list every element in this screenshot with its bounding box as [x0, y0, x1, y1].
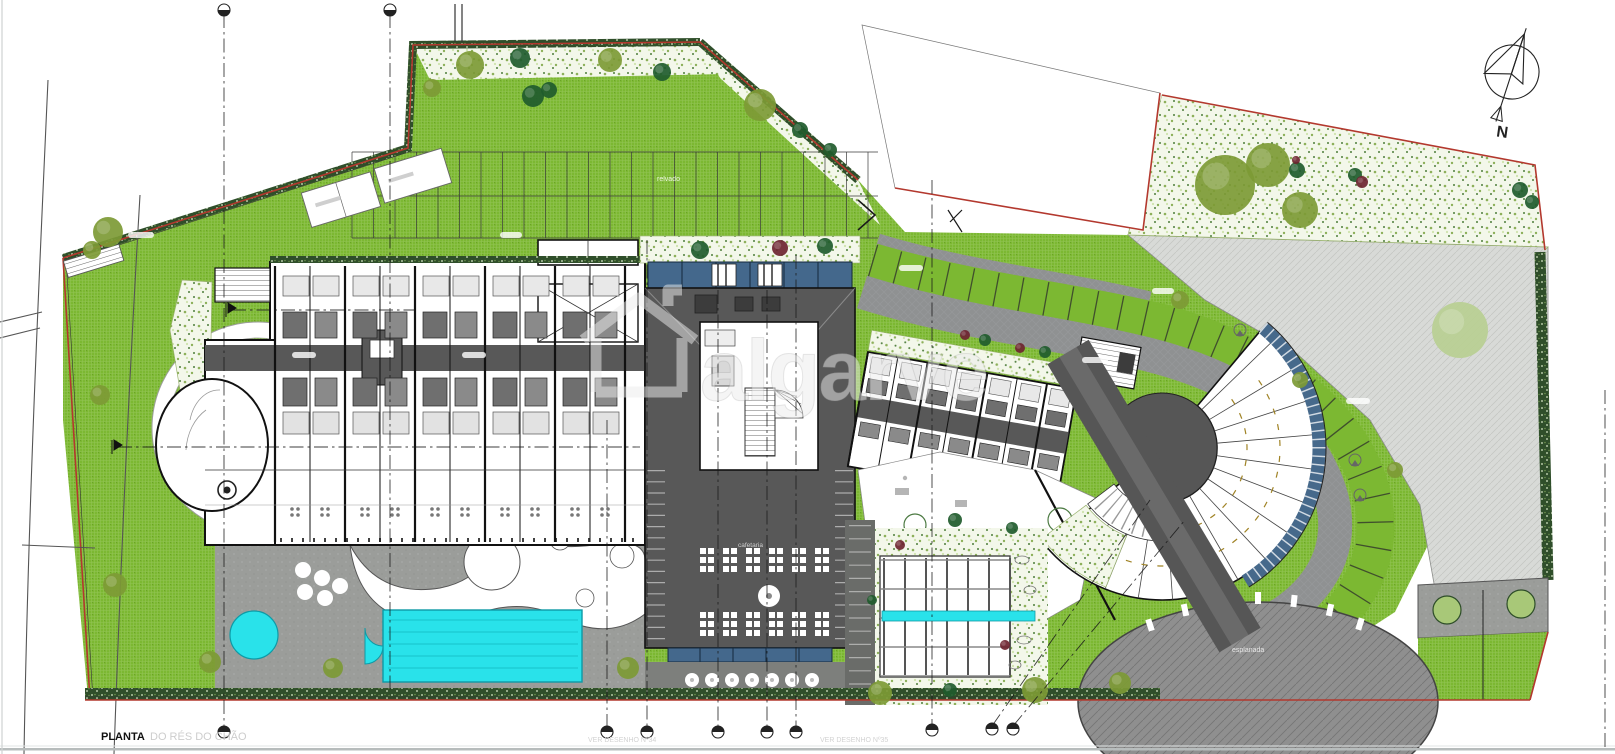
terrace-table — [500, 507, 504, 511]
table — [823, 548, 829, 554]
tree-icon — [543, 84, 550, 91]
table — [800, 557, 806, 563]
tree-icon — [945, 685, 951, 691]
terrace-table — [326, 513, 330, 517]
terrace-table — [460, 507, 464, 511]
table — [815, 566, 821, 572]
path-dark — [845, 520, 875, 705]
tree-icon — [326, 661, 335, 670]
terrace-table — [396, 513, 400, 517]
bathroom — [455, 378, 477, 406]
terrace-table — [600, 513, 604, 517]
table — [731, 557, 737, 563]
table — [769, 557, 775, 563]
bathroom — [315, 312, 337, 338]
table — [700, 557, 706, 563]
table — [746, 621, 752, 627]
tree-icon — [868, 596, 873, 601]
bed — [353, 276, 379, 296]
terrace-table — [570, 507, 574, 511]
corridor — [205, 345, 645, 371]
bathroom — [353, 378, 377, 406]
watermark-text: algarve — [700, 323, 987, 419]
tree-icon — [896, 541, 901, 546]
bed — [1019, 383, 1041, 402]
terrace-table — [326, 507, 330, 511]
bed — [283, 412, 309, 434]
tree-icon — [513, 51, 522, 60]
sheet-note-right: VER DESENHO Nº35 — [820, 737, 888, 744]
tree-icon — [460, 55, 473, 68]
tree-icon — [93, 388, 102, 397]
terrace-table — [396, 507, 400, 511]
bed — [353, 412, 379, 434]
table — [815, 548, 821, 554]
bathroom — [1037, 453, 1059, 470]
tree-icon — [1439, 309, 1464, 334]
table — [746, 566, 752, 572]
tree-icon — [819, 240, 826, 247]
terrace-table — [296, 513, 300, 517]
table — [708, 548, 714, 554]
table — [723, 566, 729, 572]
table — [777, 548, 783, 554]
table — [792, 612, 798, 618]
tree-icon — [1527, 197, 1533, 203]
bathroom — [353, 312, 377, 338]
terrace-table — [466, 513, 470, 517]
terrace-table — [600, 507, 604, 511]
tree-icon — [1514, 184, 1521, 191]
compass-north-label: N — [1495, 124, 1509, 142]
tree-icon — [620, 660, 630, 670]
terrace-label: esplanada — [1232, 647, 1264, 654]
bathroom — [563, 378, 587, 406]
round-table — [690, 678, 694, 682]
bathroom — [315, 378, 337, 406]
table — [723, 557, 729, 563]
table — [708, 630, 714, 636]
terrace-table — [436, 507, 440, 511]
tree-icon — [1252, 149, 1272, 169]
lounger — [1290, 595, 1297, 608]
road-marking — [948, 210, 962, 232]
pool-area — [215, 530, 645, 690]
section-marker — [1007, 723, 1019, 735]
main-pool — [383, 610, 582, 682]
tree-icon — [1507, 590, 1535, 618]
bathroom — [385, 378, 407, 406]
bathroom — [525, 312, 547, 338]
terrace-table — [506, 507, 510, 511]
section-marker — [384, 4, 396, 16]
table — [800, 566, 806, 572]
bed — [523, 276, 549, 296]
tree-icon — [774, 242, 781, 249]
table — [792, 621, 798, 627]
table — [700, 548, 706, 554]
section-marker — [761, 726, 773, 738]
table — [823, 566, 829, 572]
tree-icon — [202, 654, 212, 664]
table — [823, 621, 829, 627]
table — [700, 630, 706, 636]
bathroom — [1015, 405, 1037, 422]
tree-icon — [1203, 163, 1230, 190]
bathroom — [423, 378, 447, 406]
terrace-table — [536, 507, 540, 511]
tree-icon — [825, 145, 831, 151]
bed — [283, 276, 309, 296]
tree-icon — [1389, 464, 1396, 471]
table — [731, 566, 737, 572]
terrace-table — [530, 507, 534, 511]
building-west-wing — [156, 240, 645, 545]
tree-icon — [1350, 170, 1356, 176]
terrace-table — [606, 507, 610, 511]
terrace-table — [320, 507, 324, 511]
pergola-garden — [845, 520, 1048, 705]
bed — [423, 412, 449, 434]
bed — [563, 276, 589, 296]
bathroom — [858, 422, 880, 439]
table — [731, 612, 737, 618]
terrace-table — [296, 507, 300, 511]
terrace-table — [466, 507, 470, 511]
table — [777, 557, 783, 563]
table — [792, 548, 798, 554]
table — [777, 566, 783, 572]
terrace-table — [536, 513, 540, 517]
cafe-label: cafetaria — [738, 542, 763, 549]
bed — [593, 276, 619, 296]
terrace-table — [390, 513, 394, 517]
table — [754, 557, 760, 563]
floor-plan-sheet: relvado — [0, 0, 1615, 754]
terrace-table — [366, 507, 370, 511]
table — [700, 612, 706, 618]
table — [708, 612, 714, 618]
tree-icon — [1008, 524, 1013, 529]
table — [700, 621, 706, 627]
table — [777, 630, 783, 636]
tree-icon — [106, 576, 117, 587]
bed — [493, 412, 519, 434]
table — [800, 630, 806, 636]
bathroom — [385, 312, 407, 338]
bed — [453, 412, 479, 434]
bathroom — [888, 427, 910, 444]
bathroom — [1045, 410, 1067, 427]
plan-subtitle: DO RÉS DO CHÃO — [150, 730, 247, 743]
section-marker — [790, 726, 802, 738]
terrace-table — [576, 507, 580, 511]
table — [754, 612, 760, 618]
tree-icon — [97, 221, 111, 235]
bathroom — [493, 378, 517, 406]
table — [792, 557, 798, 563]
terrace-table — [500, 513, 504, 517]
table — [754, 630, 760, 636]
tree-icon — [525, 88, 535, 98]
table — [800, 612, 806, 618]
bathroom — [978, 443, 1000, 460]
terrace-table — [430, 507, 434, 511]
round-table — [710, 678, 714, 682]
tree-icon — [1294, 374, 1301, 381]
table — [769, 548, 775, 554]
table — [823, 557, 829, 563]
tree-icon — [1001, 641, 1006, 646]
table — [700, 566, 706, 572]
bathroom — [985, 400, 1007, 417]
tree-icon — [1291, 164, 1298, 171]
section-marker — [926, 724, 938, 736]
terrace-table — [360, 507, 364, 511]
terrace-table — [290, 507, 294, 511]
table — [746, 630, 752, 636]
table — [708, 557, 714, 563]
table — [769, 621, 775, 627]
bathroom — [918, 432, 940, 449]
round-table — [810, 678, 814, 682]
lounger — [1255, 592, 1261, 604]
section-marker — [218, 4, 230, 16]
terrace-table — [360, 513, 364, 517]
bed — [989, 378, 1011, 397]
table — [800, 548, 806, 554]
bathroom — [1008, 448, 1030, 465]
neighbor-plot — [862, 25, 1160, 230]
sheet-note-left: VER DESENHO Nº34 — [588, 737, 656, 744]
round-table — [790, 678, 794, 682]
tree-icon — [1041, 348, 1046, 353]
table — [731, 630, 737, 636]
round-table — [750, 678, 754, 682]
table — [823, 630, 829, 636]
table — [769, 566, 775, 572]
table — [723, 548, 729, 554]
tree-icon — [1173, 293, 1181, 301]
tree-icon — [655, 65, 663, 73]
table — [731, 548, 737, 554]
terrace-table — [530, 513, 534, 517]
table — [746, 557, 752, 563]
bed — [563, 412, 589, 434]
table — [823, 612, 829, 618]
table — [708, 566, 714, 572]
terrace-table — [320, 513, 324, 517]
round-table — [770, 678, 774, 682]
bathroom — [423, 312, 447, 338]
table — [800, 621, 806, 627]
table — [815, 557, 821, 563]
stair-block — [215, 268, 270, 302]
tree-icon — [950, 515, 956, 521]
tree-icon — [794, 124, 801, 131]
bed — [453, 276, 479, 296]
terrace-table — [570, 513, 574, 517]
table — [746, 612, 752, 618]
table — [777, 612, 783, 618]
north-compass-icon: N — [1465, 20, 1552, 147]
table — [731, 621, 737, 627]
bathroom — [283, 378, 307, 406]
bathroom — [455, 312, 477, 338]
table — [815, 621, 821, 627]
terrace-table — [576, 513, 580, 517]
table — [723, 621, 729, 627]
table — [754, 621, 760, 627]
planted-area-northeast — [1128, 95, 1548, 250]
table — [708, 621, 714, 627]
plan-title: PLANTA — [101, 731, 145, 743]
bed — [383, 276, 409, 296]
bathroom — [525, 378, 547, 406]
section-marker — [712, 726, 724, 738]
site-plan-drawing: relvado — [0, 0, 1615, 754]
table — [754, 566, 760, 572]
oval-end — [156, 379, 268, 511]
bed — [423, 276, 449, 296]
tree-icon — [1025, 680, 1037, 692]
tree-icon — [1287, 197, 1303, 213]
bed — [313, 412, 339, 434]
terrace-table — [290, 513, 294, 517]
terrace-table — [430, 513, 434, 517]
tree-icon — [693, 243, 701, 251]
tree-icon — [748, 93, 762, 107]
bathroom — [283, 312, 307, 338]
tree-icon — [425, 81, 433, 89]
table — [815, 630, 821, 636]
tree-icon — [1433, 596, 1461, 624]
round-pool — [230, 611, 278, 659]
lawn-label: relvado — [657, 176, 680, 183]
terrace-table — [436, 513, 440, 517]
round-table — [730, 678, 734, 682]
table — [769, 612, 775, 618]
tree-icon — [1293, 157, 1297, 161]
table — [792, 630, 798, 636]
bed — [523, 412, 549, 434]
bathroom — [493, 312, 517, 338]
terrace-table — [506, 513, 510, 517]
bed — [313, 276, 339, 296]
table — [815, 612, 821, 618]
tree-icon — [601, 51, 612, 62]
bed — [493, 276, 519, 296]
table — [723, 612, 729, 618]
bed — [593, 412, 619, 434]
tree-icon — [1016, 344, 1021, 349]
bathroom — [948, 438, 970, 455]
water-feature — [882, 611, 1035, 621]
section-marker — [986, 723, 998, 735]
bed — [383, 412, 409, 434]
tree-icon — [85, 243, 93, 251]
terrace-table — [390, 507, 394, 511]
table — [769, 630, 775, 636]
table — [777, 621, 783, 627]
tree-icon — [1358, 178, 1363, 183]
site-entrance-east — [1418, 578, 1548, 700]
glazing-south — [668, 648, 832, 662]
tree-icon — [871, 684, 882, 695]
table — [792, 566, 798, 572]
terrace-table — [366, 513, 370, 517]
table — [723, 630, 729, 636]
terrace-table — [460, 513, 464, 517]
tree-icon — [1112, 675, 1122, 685]
